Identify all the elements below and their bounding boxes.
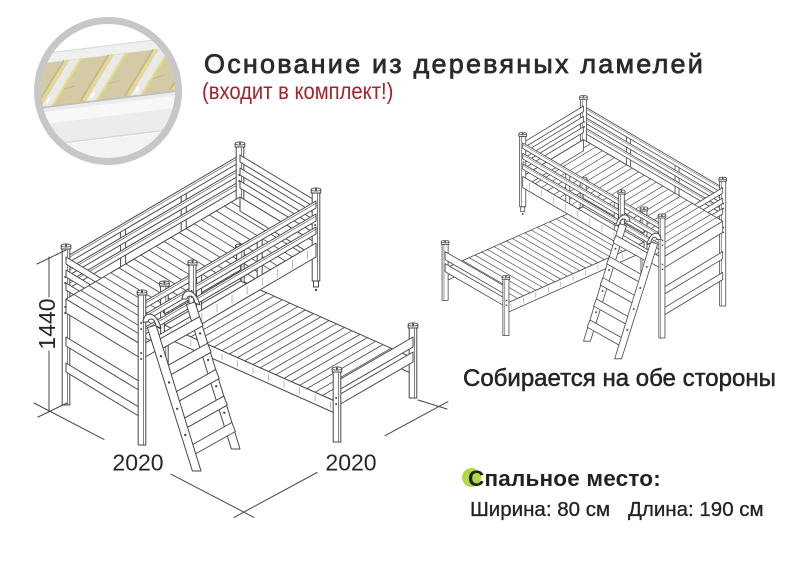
svg-text:1440: 1440 (34, 298, 60, 349)
svg-text:2020: 2020 (325, 450, 376, 476)
svg-text:2020: 2020 (112, 450, 163, 476)
